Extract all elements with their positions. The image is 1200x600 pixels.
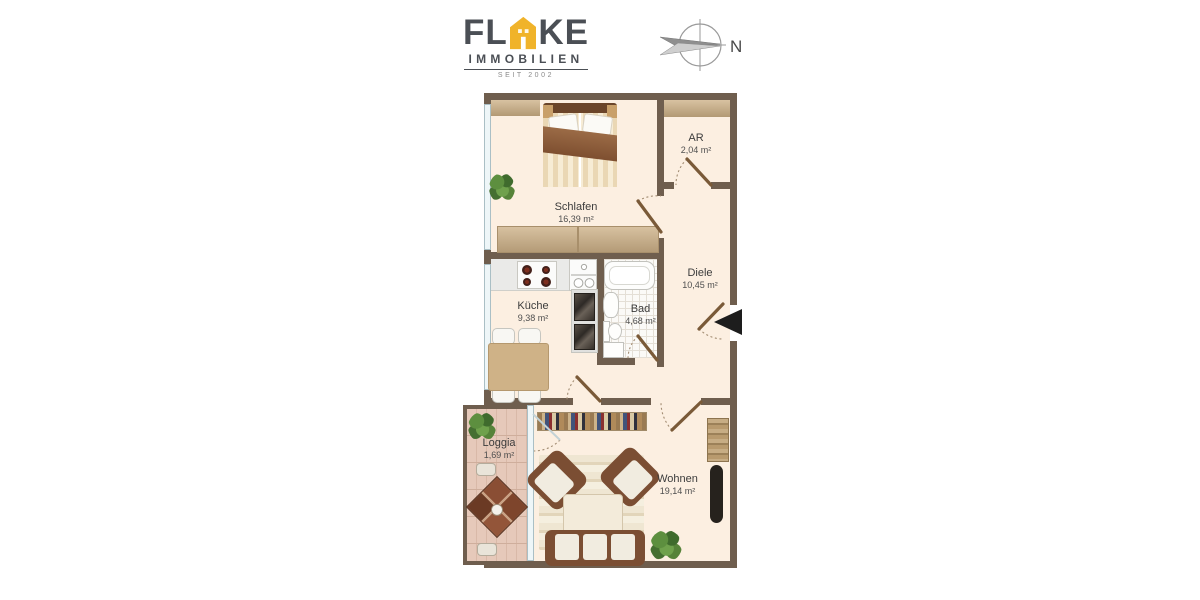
- logo-divider: [464, 69, 588, 70]
- window-schlafen: [484, 104, 491, 250]
- wall-wohnen-top-b: [601, 398, 651, 405]
- dining-table: [488, 343, 549, 391]
- fridge: [574, 324, 595, 350]
- stool: [476, 463, 496, 476]
- logo-tagline: SEIT 2002: [463, 72, 589, 79]
- bed-headboard: [543, 103, 617, 113]
- logo-text-end: KE: [538, 16, 589, 49]
- wardrobe: [497, 226, 659, 253]
- cabinet-schlafen-top: [491, 100, 540, 116]
- room-label-wohnen: Wohnen 19,14 m²: [640, 473, 715, 496]
- plant-icon: [650, 530, 682, 562]
- kitchen-sink: [569, 259, 597, 291]
- oven: [574, 293, 595, 321]
- wall-bad-bottom: [597, 358, 635, 365]
- room-label-diele: Diele 10,45 m²: [670, 267, 730, 290]
- page: { "header": { "logo": { "name_part1": "F…: [0, 0, 1200, 600]
- room-label-bad: Bad 4,68 m²: [613, 303, 668, 326]
- wall-top: [484, 93, 737, 100]
- media-shelf: [707, 418, 729, 462]
- room-label-loggia: Loggia 1,69 m²: [471, 437, 527, 460]
- room-label-schlafen: Schlafen 16,39 m²: [536, 201, 616, 224]
- wall-ar-right: [711, 182, 737, 189]
- compass-north-label: N: [730, 37, 742, 56]
- bathtub: [604, 261, 655, 290]
- house-icon: [510, 16, 537, 50]
- logo-text-start: FL: [463, 16, 508, 49]
- stove: [517, 261, 557, 289]
- plant-icon: [489, 173, 515, 203]
- coffee-table: [563, 494, 623, 534]
- company-logo: FL KE IMMOBILIEN SEIT 2002: [463, 16, 589, 79]
- bookshelf: [537, 412, 647, 431]
- compass: N: [658, 13, 758, 77]
- shelf-ar: [664, 100, 730, 117]
- washing-machine: [603, 342, 624, 358]
- compass-icon: N: [658, 13, 758, 77]
- sofa: [545, 530, 645, 566]
- logo-subtitle: IMMOBILIEN: [463, 52, 589, 66]
- stool: [477, 543, 497, 556]
- wall-schlafen-kueche: [484, 252, 664, 259]
- wall-wohnen-top-c: [701, 398, 737, 405]
- room-label-kueche: Küche 9,38 m²: [503, 300, 563, 323]
- wall-ar-left: [657, 182, 674, 189]
- wall-right-lower: [730, 341, 737, 568]
- room-label-ar: AR 2,04 m²: [666, 132, 726, 155]
- logo-wordmark: FL KE: [463, 16, 589, 49]
- double-bed: [543, 103, 617, 187]
- wall-right-upper: [730, 93, 737, 305]
